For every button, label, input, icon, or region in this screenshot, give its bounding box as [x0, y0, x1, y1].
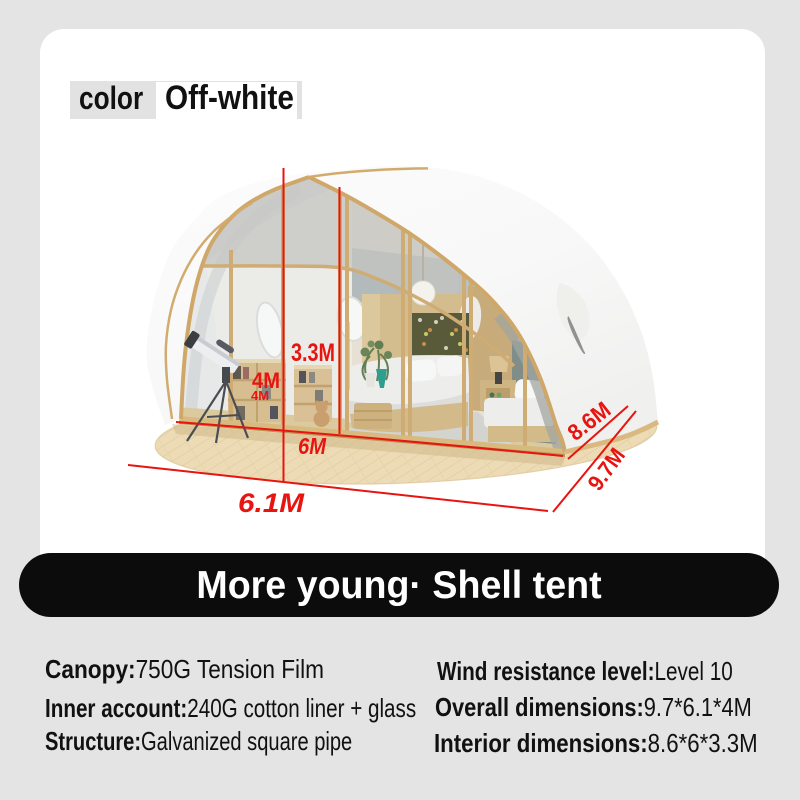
- svg-text:6.1M: 6.1M: [238, 488, 305, 518]
- svg-text:6M: 6M: [298, 433, 327, 459]
- svg-text:4M: 4M: [252, 368, 280, 393]
- svg-text:3.3M: 3.3M: [291, 339, 335, 367]
